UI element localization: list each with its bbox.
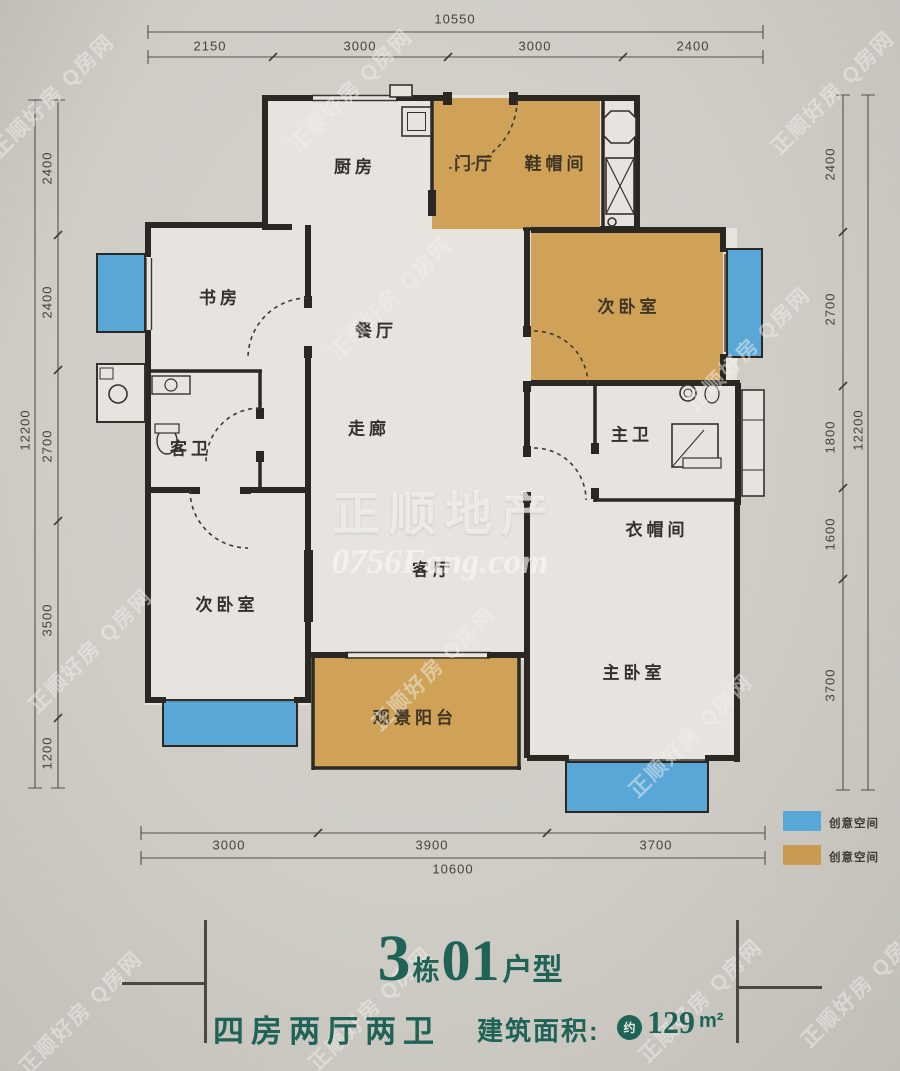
diagonal-watermark: 正顺好房 Q房网	[11, 943, 148, 1071]
dim-left-seg-3: 2700	[40, 430, 55, 463]
dim-bottom-total: 10600	[432, 862, 473, 877]
area-unit: m²	[699, 1010, 723, 1033]
room-label-shoe-room: 鞋帽间	[525, 150, 588, 175]
dim-bottom-seg-1: 3000	[213, 838, 246, 853]
dim-right-seg-3: 1800	[823, 421, 838, 454]
exterior-duct	[742, 390, 764, 496]
dim-left-seg-4: 3500	[40, 604, 55, 637]
approx-circle-badge: 约	[617, 1015, 642, 1040]
room-label-balcony: 观景阳台	[373, 704, 457, 729]
unit-title: 3 栋 01 户型	[378, 926, 563, 992]
room-label-kitchen: 厨房	[334, 153, 376, 178]
title-bracket-left-horizontal	[122, 982, 204, 985]
diagonal-watermark: 正顺好房 Q房网	[793, 916, 900, 1053]
unit-title-unit-suffix: 户型	[503, 945, 563, 989]
dim-top-seg-1: 2150	[194, 39, 227, 54]
dim-right-seg-4: 1600	[823, 518, 838, 551]
title-bracket-right-vertical	[736, 920, 739, 1043]
dim-top-seg-2: 3000	[344, 39, 377, 54]
room-label-bedroom2-top: 次卧室	[598, 293, 661, 318]
title-bracket-right-horizontal	[739, 986, 822, 989]
room-label-cloakroom: 衣帽间	[626, 516, 689, 541]
dim-right-seg-1: 2400	[823, 148, 838, 181]
floor-plan-canvas	[0, 0, 900, 880]
dim-bottom-seg-2: 3900	[416, 838, 449, 853]
area-label: 建筑面积:	[477, 1011, 600, 1048]
dim-top-seg-4: 2400	[677, 39, 710, 54]
room-label-master-bedroom: 主卧室	[603, 659, 666, 684]
title-bracket-left-vertical	[204, 920, 207, 1043]
room-label-foyer: 门厅	[454, 150, 496, 175]
dim-left-seg-2: 2400	[40, 286, 55, 319]
legend-orange-swatch	[783, 845, 821, 865]
dim-left-total: 12200	[18, 409, 33, 450]
legend-orange-label: 创意空间	[829, 849, 879, 865]
legend-blue-swatch	[783, 811, 821, 831]
legend-blue-label: 创意空间	[829, 815, 879, 831]
room-label-master-bath: 主卫	[611, 421, 653, 446]
room-label-corridor: 走廊	[348, 415, 390, 440]
dim-right-seg-5: 3700	[823, 669, 838, 702]
unit-title-unit-number: 01	[442, 932, 500, 990]
room-label-study: 书房	[199, 284, 241, 309]
approx-text: 约	[623, 1019, 635, 1036]
dim-bottom-seg-3: 3700	[640, 838, 673, 853]
agency-watermark-domain: 0756Fang.com	[332, 542, 549, 582]
room-label-bedroom2-bottom: 次卧室	[196, 591, 259, 616]
layout-description: 四房两厅两卫	[213, 1006, 441, 1051]
unit-title-building-number: 3	[378, 926, 411, 992]
dim-right-total: 12200	[851, 409, 866, 450]
room-label-dining: 餐厅	[355, 317, 397, 342]
duct-octagon	[604, 111, 636, 143]
dim-left-seg-1: 2400	[40, 152, 55, 185]
agency-watermark-name: 正顺地产	[333, 476, 557, 545]
diagonal-watermark: 正顺好房 Q房网	[631, 931, 768, 1068]
dim-right-seg-2: 2700	[823, 293, 838, 326]
floorplan-photo-page: 10550 2150 3000 3000 2400 12200 2400 240…	[0, 0, 900, 1071]
unit-title-building-suffix: 栋	[413, 949, 440, 988]
dim-top-total: 10550	[434, 12, 475, 27]
dim-left-seg-5: 1200	[40, 737, 55, 770]
dim-top-seg-3: 3000	[519, 39, 552, 54]
area-value: 129	[647, 1004, 695, 1041]
room-label-guest-bath: 客卫	[170, 435, 212, 460]
